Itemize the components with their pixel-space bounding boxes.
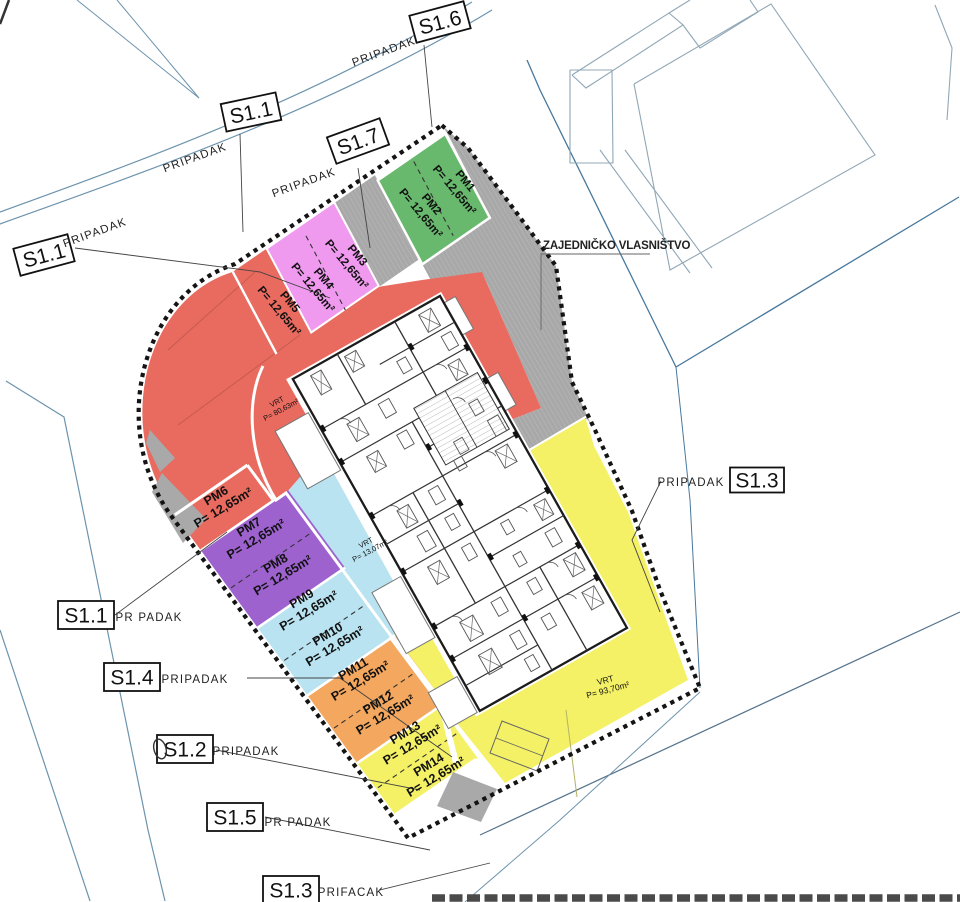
svg-text:PRIPADAK: PRIPADAK xyxy=(658,477,725,489)
svg-text:PRIPADAK: PRIPADAK xyxy=(213,746,280,758)
svg-text:S1.3: S1.3 xyxy=(269,880,312,902)
svg-text:ZAJEDNIČKO VLASNIŠTVO: ZAJEDNIČKO VLASNIŠTVO xyxy=(543,239,690,252)
svg-text:S1.2: S1.2 xyxy=(163,739,206,762)
svg-text:S1.5: S1.5 xyxy=(213,807,256,830)
svg-text:S1.3: S1.3 xyxy=(735,470,778,493)
svg-text:PR PADAK: PR PADAK xyxy=(116,612,183,624)
svg-text:PRIFACAK: PRIFACAK xyxy=(318,887,384,899)
svg-text:S1.4: S1.4 xyxy=(110,667,154,690)
svg-text:S1.1: S1.1 xyxy=(64,605,107,628)
svg-text:PR PADAK: PR PADAK xyxy=(265,817,332,829)
svg-text:PRIPADAK: PRIPADAK xyxy=(162,674,229,686)
